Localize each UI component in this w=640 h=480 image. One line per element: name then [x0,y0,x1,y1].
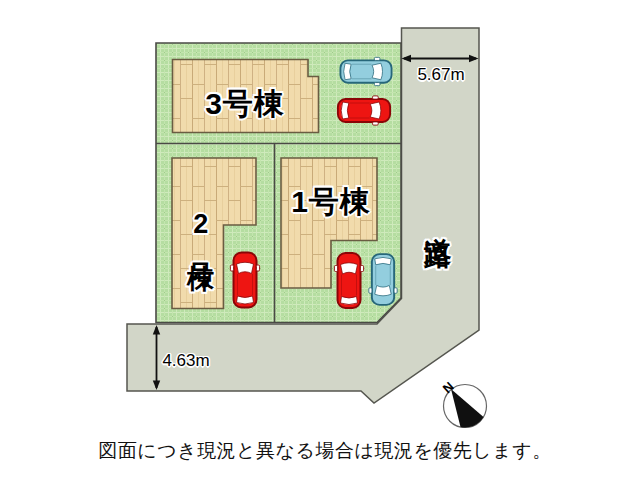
building-3-footprint [173,60,319,133]
car-lot1-blue [369,254,397,305]
site-plan-canvas: N 3号棟 2号棟 1号棟 道路 5.67m 4.63m 図面につき現況と異なる… [0,0,640,480]
car-top-blue [340,57,391,85]
north-arrow-compass: N [440,379,487,428]
car-top-red [338,96,390,125]
car-lot1-red [334,253,363,308]
car-lot2-red [230,253,259,308]
site-plan-drawing: N [0,0,640,480]
